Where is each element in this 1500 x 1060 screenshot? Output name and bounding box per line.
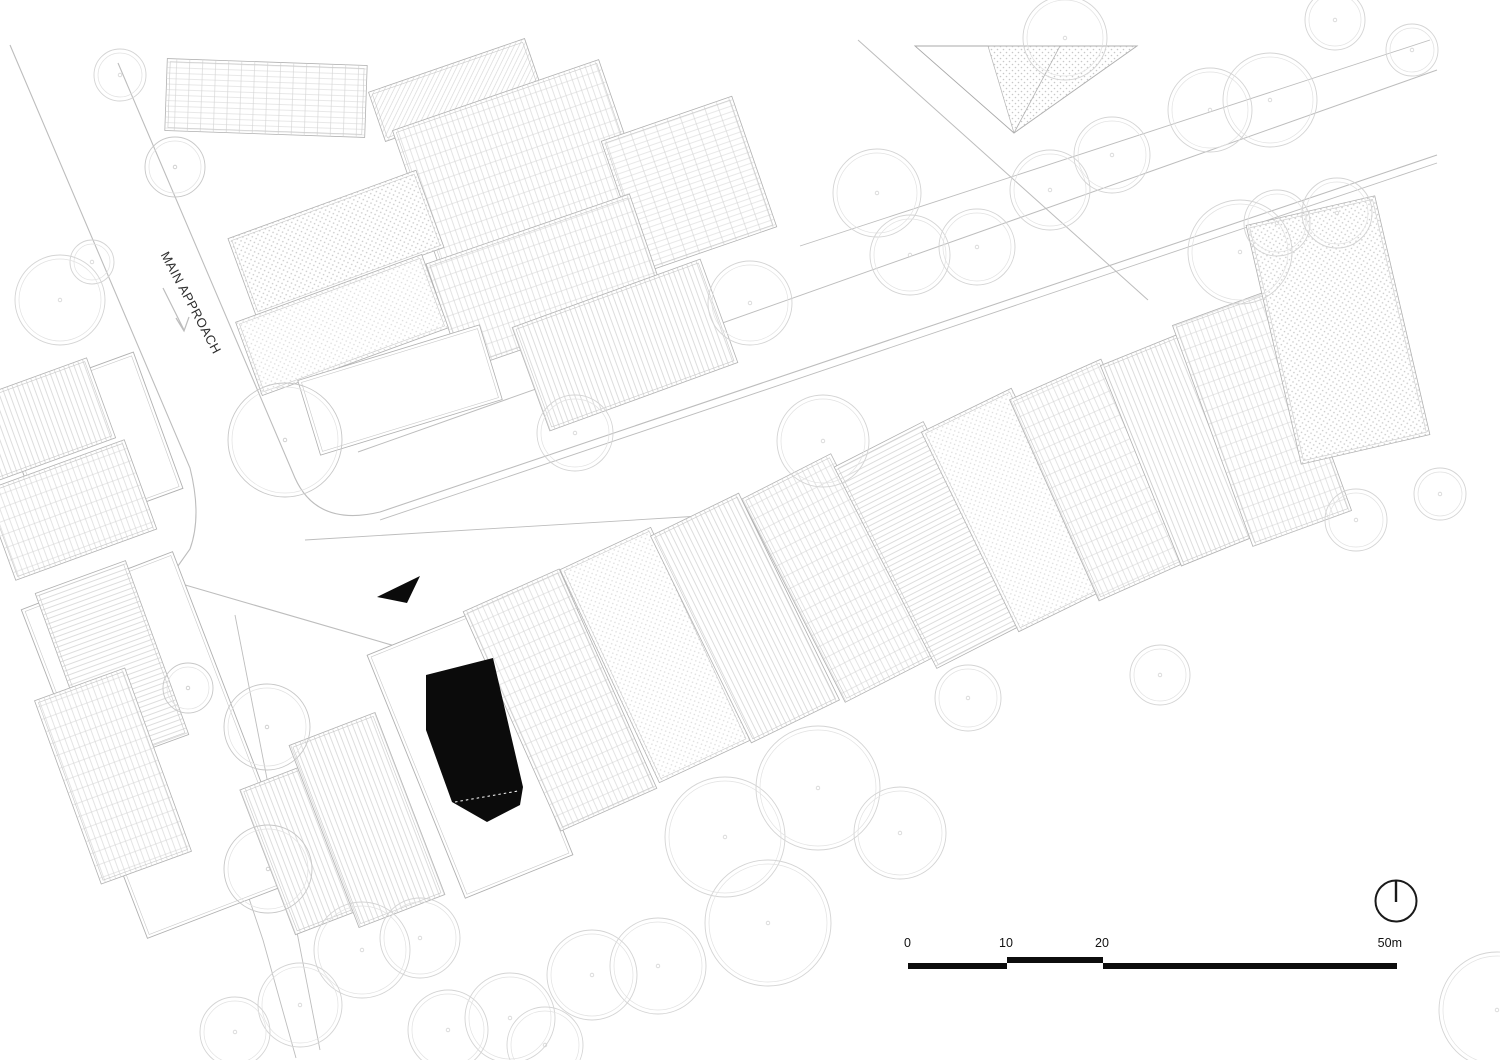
tree-icon: [380, 898, 460, 978]
tree-icon: [408, 990, 488, 1060]
north-indicator-icon: [1376, 881, 1417, 922]
tree-icon: [200, 997, 270, 1060]
tree-icon: [94, 49, 146, 101]
tree-icon: [665, 777, 785, 897]
tree-icon: [1386, 24, 1438, 76]
tree-icon: [1414, 468, 1466, 520]
tree-icon: [1305, 0, 1365, 50]
tree-icon: [756, 726, 880, 850]
scale-bar-segment: [908, 963, 1007, 969]
pitched-roof-building: [915, 46, 1137, 133]
pitched-roof-hatch: [988, 46, 1137, 133]
building-roof: [165, 59, 367, 138]
tree-icon: [465, 973, 555, 1060]
tree-icon: [258, 963, 342, 1047]
scale-bar-segment: [1103, 963, 1397, 969]
tree-icon: [939, 209, 1015, 285]
tree-icon: [1074, 117, 1150, 193]
tree-icon: [145, 137, 205, 197]
tree-icon: [15, 255, 105, 345]
site-plan-canvas: MAIN APPROACH 0 10 20 50m: [0, 0, 1500, 1060]
tree-icon: [1223, 53, 1317, 147]
tree-icon: [1325, 489, 1387, 551]
tree-icon: [547, 930, 637, 1020]
tree-icon: [1130, 645, 1190, 705]
tree-icon: [935, 665, 1001, 731]
tree-icon: [1010, 150, 1090, 230]
scale-tick-0: 0: [904, 936, 911, 950]
scale-tick-10: 10: [999, 936, 1013, 950]
entry-direction-arrow-icon: [377, 576, 420, 603]
site-plan-drawing: [0, 0, 1500, 1060]
tree-icon: [854, 787, 946, 879]
scale-bar-segment: [1007, 957, 1103, 963]
scale-tick-20: 20: [1095, 936, 1109, 950]
scale-tick-50: 50m: [1378, 936, 1402, 950]
tree-icon: [1168, 68, 1252, 152]
tree-icon: [1439, 952, 1500, 1060]
tree-icon: [833, 149, 921, 237]
tree-icon: [870, 215, 950, 295]
scale-bar: 0 10 20 50m: [908, 936, 1400, 976]
tree-icon: [70, 240, 114, 284]
